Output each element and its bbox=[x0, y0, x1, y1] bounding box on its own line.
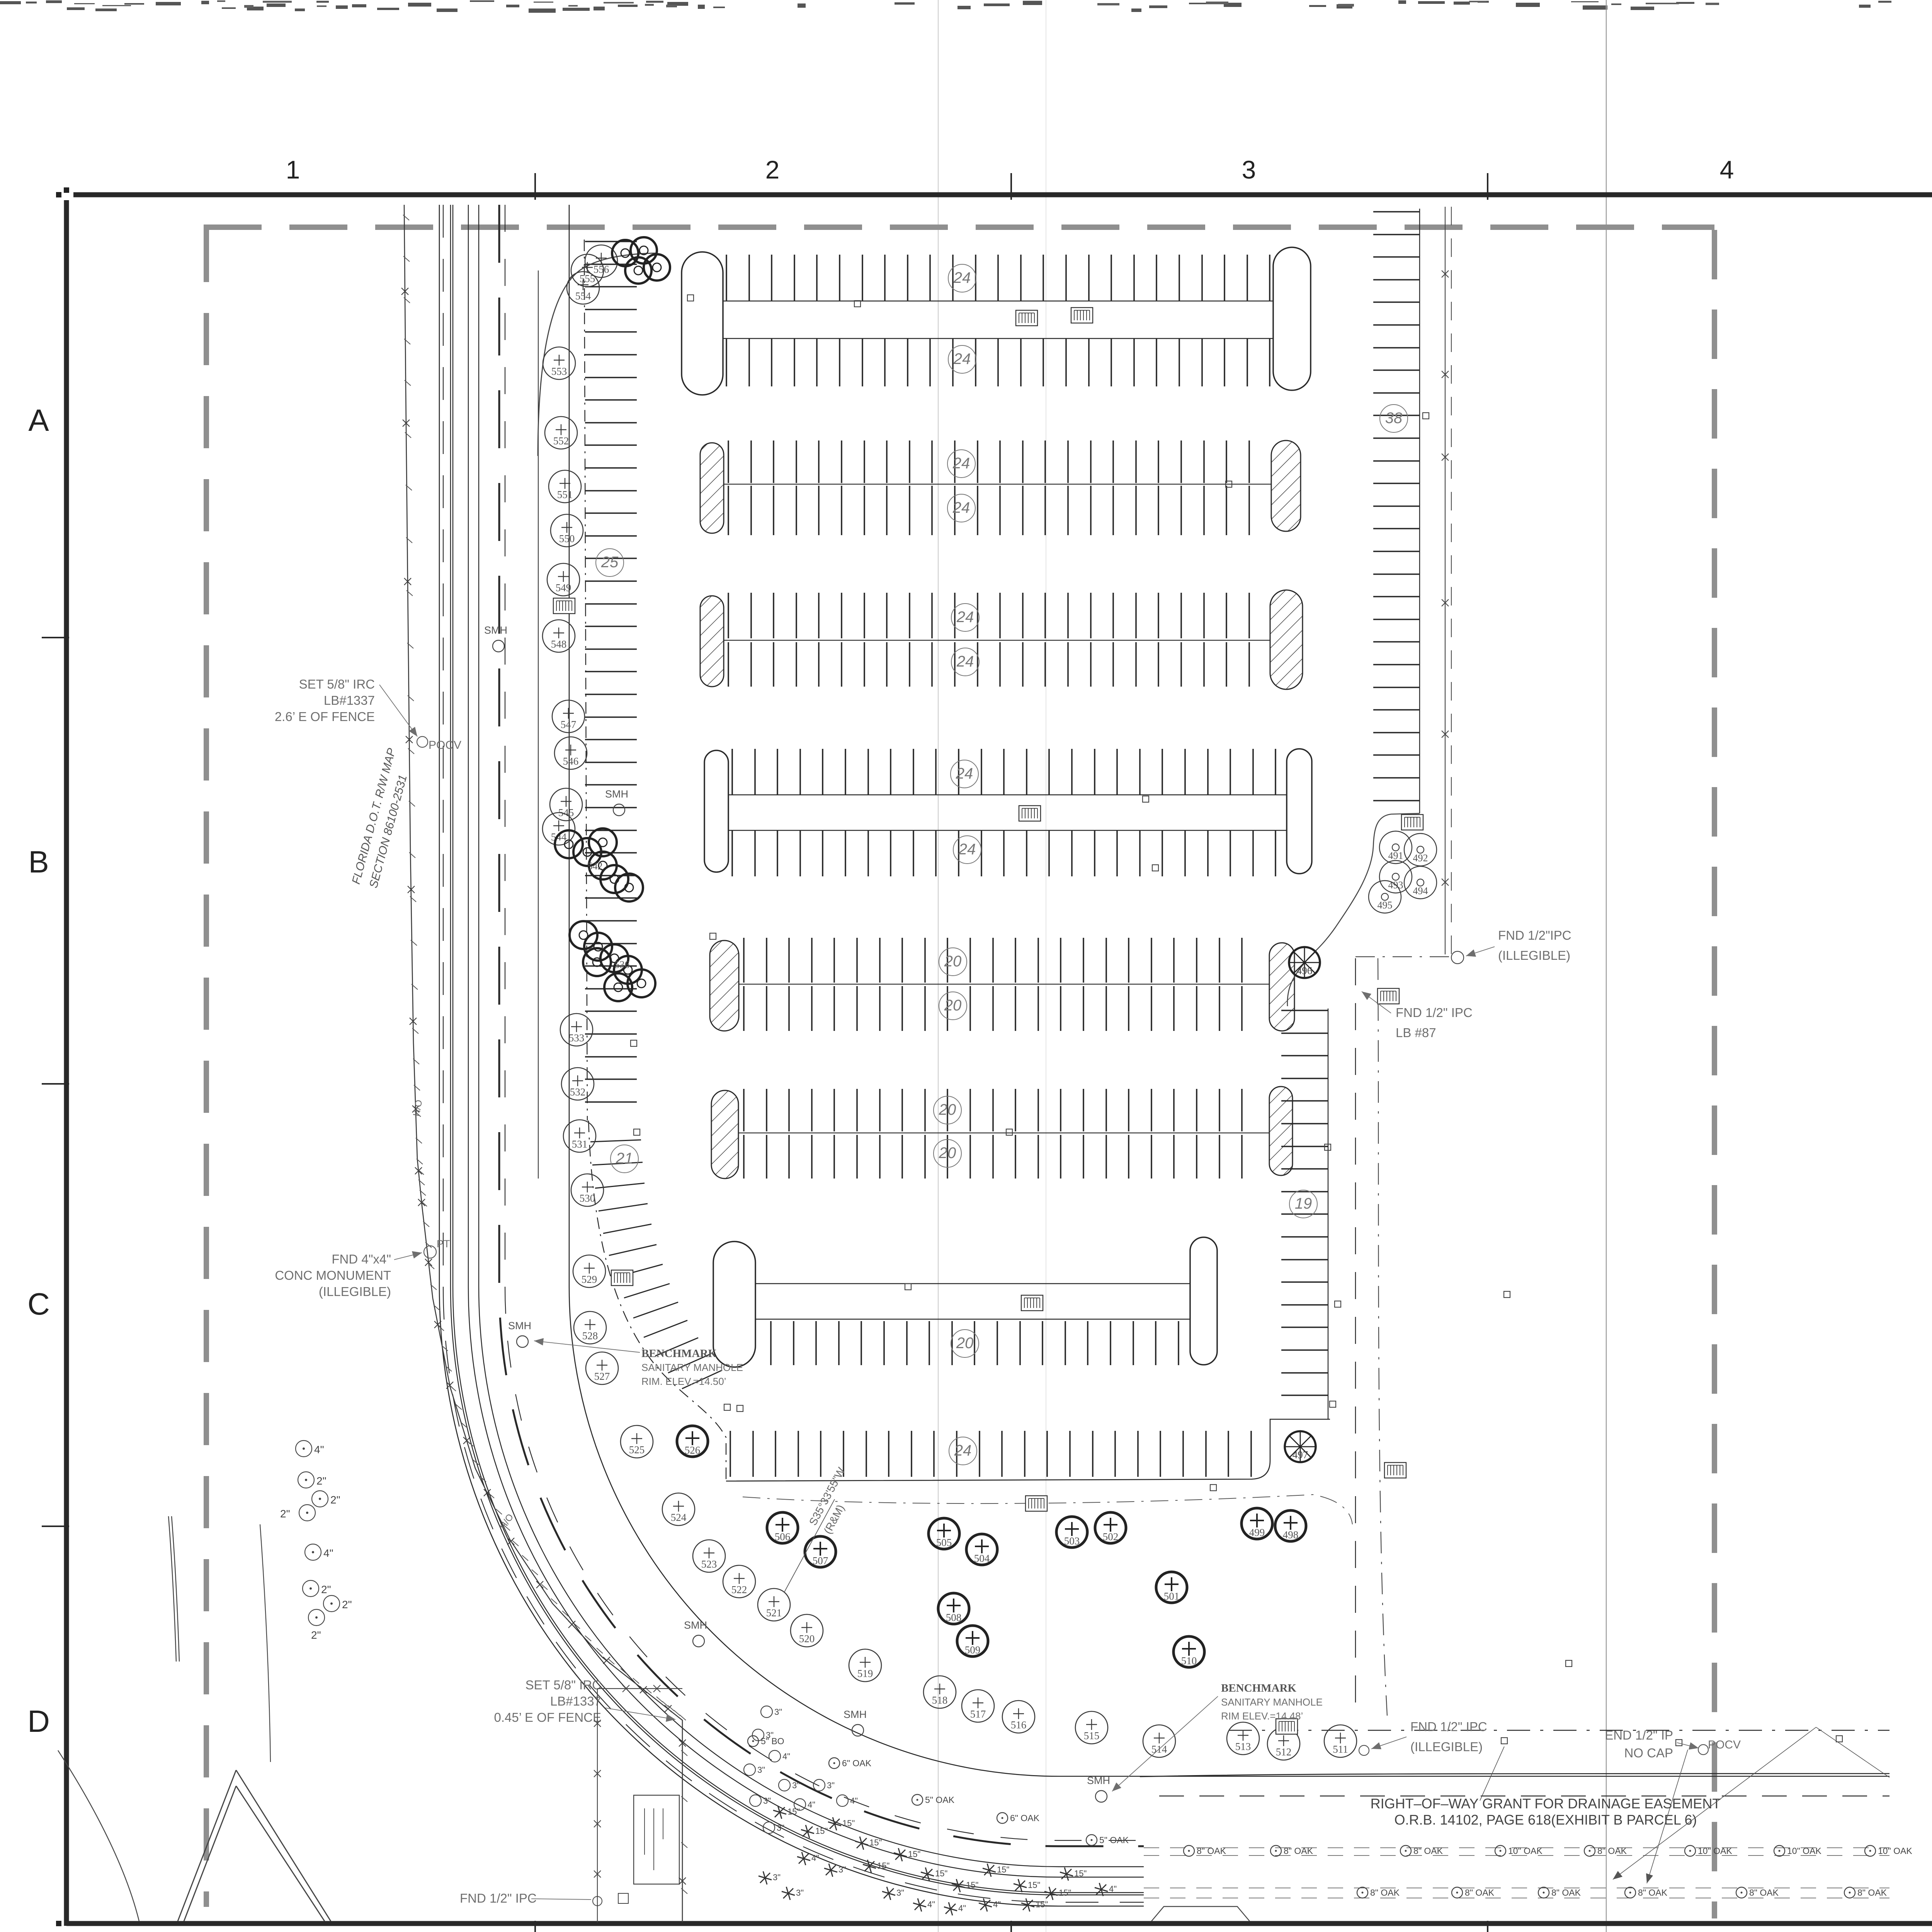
svg-text:24: 24 bbox=[956, 609, 974, 626]
svg-text:24: 24 bbox=[954, 1442, 972, 1459]
svg-text:SANITARY MANHOLE: SANITARY MANHOLE bbox=[641, 1362, 743, 1373]
svg-text:RIGHT–OF–WAY GRANT FOR DRAINAG: RIGHT–OF–WAY GRANT FOR DRAINAGE EASEMENT bbox=[1371, 1796, 1721, 1811]
svg-text:519: 519 bbox=[857, 1668, 873, 1679]
svg-text:SMH: SMH bbox=[605, 788, 628, 800]
svg-text:20: 20 bbox=[939, 1145, 956, 1162]
svg-text:10" OAK: 10" OAK bbox=[1878, 1846, 1912, 1856]
svg-text:3": 3" bbox=[827, 1781, 835, 1790]
svg-text:LB #87: LB #87 bbox=[1396, 1026, 1436, 1040]
svg-text:503: 503 bbox=[1064, 1535, 1080, 1547]
svg-text:24: 24 bbox=[956, 765, 973, 782]
svg-text:523: 523 bbox=[701, 1558, 717, 1570]
svg-text:542: 542 bbox=[588, 861, 603, 872]
svg-text:C: C bbox=[27, 1287, 50, 1321]
svg-text:8" OAK: 8" OAK bbox=[1370, 1888, 1400, 1898]
svg-text:3": 3" bbox=[757, 1765, 765, 1775]
svg-text:531: 531 bbox=[572, 1138, 588, 1150]
svg-text:4": 4" bbox=[1109, 1884, 1117, 1894]
svg-text:2": 2" bbox=[316, 1475, 327, 1487]
svg-text:(ILLEGIBLE): (ILLEGIBLE) bbox=[319, 1284, 391, 1299]
svg-text:SET 5/8" IRC: SET 5/8" IRC bbox=[299, 677, 375, 691]
svg-text:5" OAK: 5" OAK bbox=[1099, 1835, 1129, 1845]
svg-text:3": 3" bbox=[796, 1888, 804, 1898]
svg-text:15": 15" bbox=[935, 1869, 947, 1878]
svg-text:20: 20 bbox=[944, 953, 962, 970]
svg-text:(ILLEGIBLE): (ILLEGIBLE) bbox=[1410, 1740, 1483, 1754]
svg-text:8" OAK: 8" OAK bbox=[1749, 1888, 1779, 1898]
svg-text:506: 506 bbox=[775, 1531, 791, 1543]
svg-text:2.6’ E OF FENCE: 2.6’ E OF FENCE bbox=[275, 709, 375, 724]
svg-text:3": 3" bbox=[773, 1872, 781, 1882]
svg-text:526: 526 bbox=[685, 1444, 701, 1456]
svg-text:20: 20 bbox=[956, 1335, 974, 1352]
svg-text:511: 511 bbox=[1333, 1743, 1348, 1755]
svg-text:516: 516 bbox=[1011, 1719, 1027, 1731]
svg-text:15": 15" bbox=[787, 1807, 800, 1816]
svg-text:24: 24 bbox=[953, 350, 971, 367]
svg-text:5" OAK: 5" OAK bbox=[925, 1795, 955, 1805]
svg-text:SMH: SMH bbox=[1087, 1775, 1110, 1786]
svg-text:504: 504 bbox=[974, 1553, 990, 1564]
svg-text:SANITARY MANHOLE: SANITARY MANHOLE bbox=[1221, 1696, 1323, 1708]
svg-text:FND 1/2" IPC: FND 1/2" IPC bbox=[1410, 1719, 1487, 1734]
svg-text:A: A bbox=[28, 403, 49, 437]
svg-text:507: 507 bbox=[813, 1555, 828, 1566]
svg-text:15": 15" bbox=[966, 1880, 978, 1890]
svg-text:509: 509 bbox=[965, 1644, 981, 1656]
svg-text:2: 2 bbox=[765, 155, 780, 184]
svg-text:B: B bbox=[28, 845, 49, 879]
svg-text:502: 502 bbox=[1103, 1531, 1119, 1543]
svg-text:O.R.B. 14102, PAGE 618(EXHIBIT: O.R.B. 14102, PAGE 618(EXHIBIT B PARCEL … bbox=[1395, 1812, 1697, 1828]
svg-text:24: 24 bbox=[956, 653, 974, 670]
svg-text:20: 20 bbox=[944, 997, 962, 1014]
svg-text:550: 550 bbox=[559, 533, 575, 544]
svg-text:3": 3" bbox=[792, 1781, 800, 1790]
svg-text:NO CAP: NO CAP bbox=[1624, 1746, 1673, 1760]
svg-text:522: 522 bbox=[731, 1584, 747, 1595]
svg-text:517: 517 bbox=[970, 1708, 986, 1720]
svg-text:495: 495 bbox=[1378, 900, 1393, 911]
svg-text:536: 536 bbox=[615, 959, 630, 970]
svg-text:24: 24 bbox=[953, 269, 971, 286]
svg-text:21: 21 bbox=[616, 1150, 633, 1167]
svg-text:8" OAK: 8" OAK bbox=[1857, 1888, 1887, 1898]
svg-text:SMH: SMH bbox=[484, 624, 507, 636]
svg-text:4": 4" bbox=[850, 1796, 858, 1806]
svg-text:PT: PT bbox=[437, 1238, 450, 1250]
svg-text:8" OAK: 8" OAK bbox=[1597, 1846, 1627, 1856]
svg-text:532: 532 bbox=[570, 1086, 586, 1098]
svg-text:15": 15" bbox=[1028, 1880, 1040, 1890]
svg-text:494: 494 bbox=[1413, 885, 1428, 896]
svg-text:556: 556 bbox=[594, 264, 609, 275]
svg-text:LB#1337: LB#1337 bbox=[550, 1694, 601, 1708]
svg-text:546: 546 bbox=[563, 755, 579, 767]
svg-text:3": 3" bbox=[774, 1707, 782, 1717]
svg-text:4": 4" bbox=[782, 1752, 790, 1761]
svg-text:2": 2" bbox=[342, 1599, 352, 1611]
svg-text:527: 527 bbox=[594, 1371, 610, 1382]
svg-text:CONC MONUMENT: CONC MONUMENT bbox=[275, 1268, 391, 1282]
svg-text:3": 3" bbox=[766, 1730, 774, 1740]
svg-text:552: 552 bbox=[553, 435, 569, 447]
svg-text:6" OAK: 6" OAK bbox=[1010, 1813, 1040, 1823]
svg-text:15": 15" bbox=[1036, 1900, 1048, 1909]
svg-text:549: 549 bbox=[556, 582, 571, 594]
svg-text:3": 3" bbox=[777, 1823, 784, 1833]
svg-text:4": 4" bbox=[808, 1800, 815, 1810]
svg-text:3": 3" bbox=[763, 1796, 771, 1806]
svg-text:BENCHMARK: BENCHMARK bbox=[1221, 1682, 1296, 1694]
svg-text:4": 4" bbox=[811, 1853, 819, 1863]
svg-text:10" OAK: 10" OAK bbox=[1698, 1846, 1732, 1856]
svg-text:15": 15" bbox=[1074, 1869, 1087, 1878]
svg-text:24: 24 bbox=[958, 841, 976, 858]
svg-text:RIM ELEV.=14.48’: RIM ELEV.=14.48’ bbox=[1221, 1710, 1303, 1722]
svg-text:2": 2" bbox=[321, 1583, 331, 1595]
svg-text:528: 528 bbox=[582, 1330, 598, 1342]
svg-text:1: 1 bbox=[286, 155, 300, 184]
svg-text:553: 553 bbox=[551, 366, 567, 377]
svg-text:518: 518 bbox=[932, 1694, 948, 1706]
svg-text:D: D bbox=[27, 1704, 50, 1738]
svg-text:3: 3 bbox=[1242, 155, 1256, 184]
svg-text:513: 513 bbox=[1235, 1741, 1251, 1752]
svg-text:(ILLEGIBLE): (ILLEGIBLE) bbox=[1498, 948, 1570, 963]
svg-text:24: 24 bbox=[952, 455, 970, 472]
svg-text:15": 15" bbox=[908, 1849, 920, 1859]
svg-text:15": 15" bbox=[997, 1865, 1009, 1874]
svg-text:524: 524 bbox=[671, 1512, 687, 1523]
svg-text:8" OAK: 8" OAK bbox=[1413, 1846, 1443, 1856]
svg-text:15": 15" bbox=[877, 1861, 889, 1871]
svg-text:4": 4" bbox=[314, 1444, 324, 1456]
svg-text:SET 5/8" IRC: SET 5/8" IRC bbox=[526, 1678, 601, 1692]
svg-text:498: 498 bbox=[1283, 1529, 1299, 1541]
svg-text:554: 554 bbox=[575, 290, 591, 302]
svg-text:15": 15" bbox=[842, 1818, 855, 1828]
svg-text:SMH: SMH bbox=[508, 1320, 531, 1332]
svg-text:496: 496 bbox=[1297, 965, 1313, 976]
svg-text:508: 508 bbox=[946, 1612, 962, 1623]
svg-text:4": 4" bbox=[927, 1900, 935, 1909]
svg-text:533: 533 bbox=[569, 1032, 585, 1044]
svg-text:2": 2" bbox=[311, 1629, 321, 1641]
svg-text:SMH: SMH bbox=[844, 1709, 867, 1720]
svg-text:8" OAK: 8" OAK bbox=[1551, 1888, 1581, 1898]
svg-text:BENCHMARK: BENCHMARK bbox=[641, 1347, 717, 1360]
svg-text:FND 1/2" IPC: FND 1/2" IPC bbox=[460, 1891, 537, 1905]
svg-text:8" OAK: 8" OAK bbox=[1197, 1846, 1226, 1856]
svg-text:15": 15" bbox=[869, 1838, 882, 1847]
svg-text:RIM. ELEV.=14.50’: RIM. ELEV.=14.50’ bbox=[641, 1376, 726, 1387]
svg-text:4": 4" bbox=[323, 1547, 333, 1559]
svg-text:8" OAK: 8" OAK bbox=[1465, 1888, 1495, 1898]
svg-text:4": 4" bbox=[993, 1900, 1001, 1909]
svg-text:551: 551 bbox=[557, 489, 573, 500]
svg-text:19: 19 bbox=[1295, 1195, 1312, 1212]
svg-text:0.45’ E OF FENCE: 0.45’ E OF FENCE bbox=[494, 1710, 601, 1725]
svg-text:520: 520 bbox=[799, 1633, 815, 1645]
svg-text:FND 1/2" IPC: FND 1/2" IPC bbox=[1396, 1005, 1473, 1020]
svg-text:SMH: SMH bbox=[684, 1619, 707, 1631]
svg-text:24: 24 bbox=[952, 499, 970, 516]
svg-text:END 1/2" IP: END 1/2" IP bbox=[1605, 1728, 1673, 1742]
svg-text:512: 512 bbox=[1276, 1746, 1292, 1758]
svg-text:20: 20 bbox=[939, 1101, 956, 1118]
svg-text:8" OAK: 8" OAK bbox=[1284, 1846, 1313, 1856]
svg-text:492: 492 bbox=[1413, 852, 1428, 864]
svg-text:38: 38 bbox=[1385, 410, 1403, 427]
svg-text:497: 497 bbox=[1293, 1449, 1308, 1461]
svg-text:6" OAK: 6" OAK bbox=[842, 1758, 872, 1768]
svg-text:4": 4" bbox=[958, 1903, 966, 1913]
svg-text:548: 548 bbox=[551, 638, 567, 650]
svg-text:25: 25 bbox=[601, 554, 619, 571]
svg-text:491: 491 bbox=[1388, 850, 1403, 861]
svg-text:15": 15" bbox=[1059, 1888, 1071, 1898]
svg-text:501: 501 bbox=[1164, 1590, 1180, 1602]
svg-text:530: 530 bbox=[580, 1192, 595, 1204]
svg-text:FND 1/2"IPC: FND 1/2"IPC bbox=[1498, 928, 1571, 942]
svg-text:544: 544 bbox=[551, 831, 567, 843]
svg-text:505: 505 bbox=[936, 1537, 952, 1548]
svg-text:15": 15" bbox=[815, 1826, 828, 1836]
svg-text:LB#1337: LB#1337 bbox=[324, 693, 375, 707]
svg-text:547: 547 bbox=[561, 719, 577, 730]
svg-text:2": 2" bbox=[280, 1508, 290, 1520]
svg-text:8" OAK: 8" OAK bbox=[1638, 1888, 1668, 1898]
svg-text:3": 3" bbox=[838, 1865, 846, 1874]
svg-text:POCV: POCV bbox=[429, 739, 461, 752]
svg-text:510: 510 bbox=[1181, 1655, 1197, 1667]
svg-text:515: 515 bbox=[1084, 1730, 1100, 1742]
svg-text:3": 3" bbox=[896, 1888, 904, 1898]
svg-text:521: 521 bbox=[766, 1607, 782, 1619]
svg-text:529: 529 bbox=[582, 1274, 597, 1285]
svg-text:4: 4 bbox=[1720, 155, 1734, 184]
svg-text:2": 2" bbox=[330, 1494, 340, 1506]
svg-text:525: 525 bbox=[629, 1444, 645, 1456]
svg-text:10" OAK: 10" OAK bbox=[1787, 1846, 1821, 1856]
svg-text:10" OAK: 10" OAK bbox=[1508, 1846, 1543, 1856]
svg-text:499: 499 bbox=[1249, 1527, 1265, 1538]
svg-text:FND 4"x4": FND 4"x4" bbox=[332, 1252, 391, 1266]
svg-text:POCV: POCV bbox=[1708, 1738, 1741, 1751]
